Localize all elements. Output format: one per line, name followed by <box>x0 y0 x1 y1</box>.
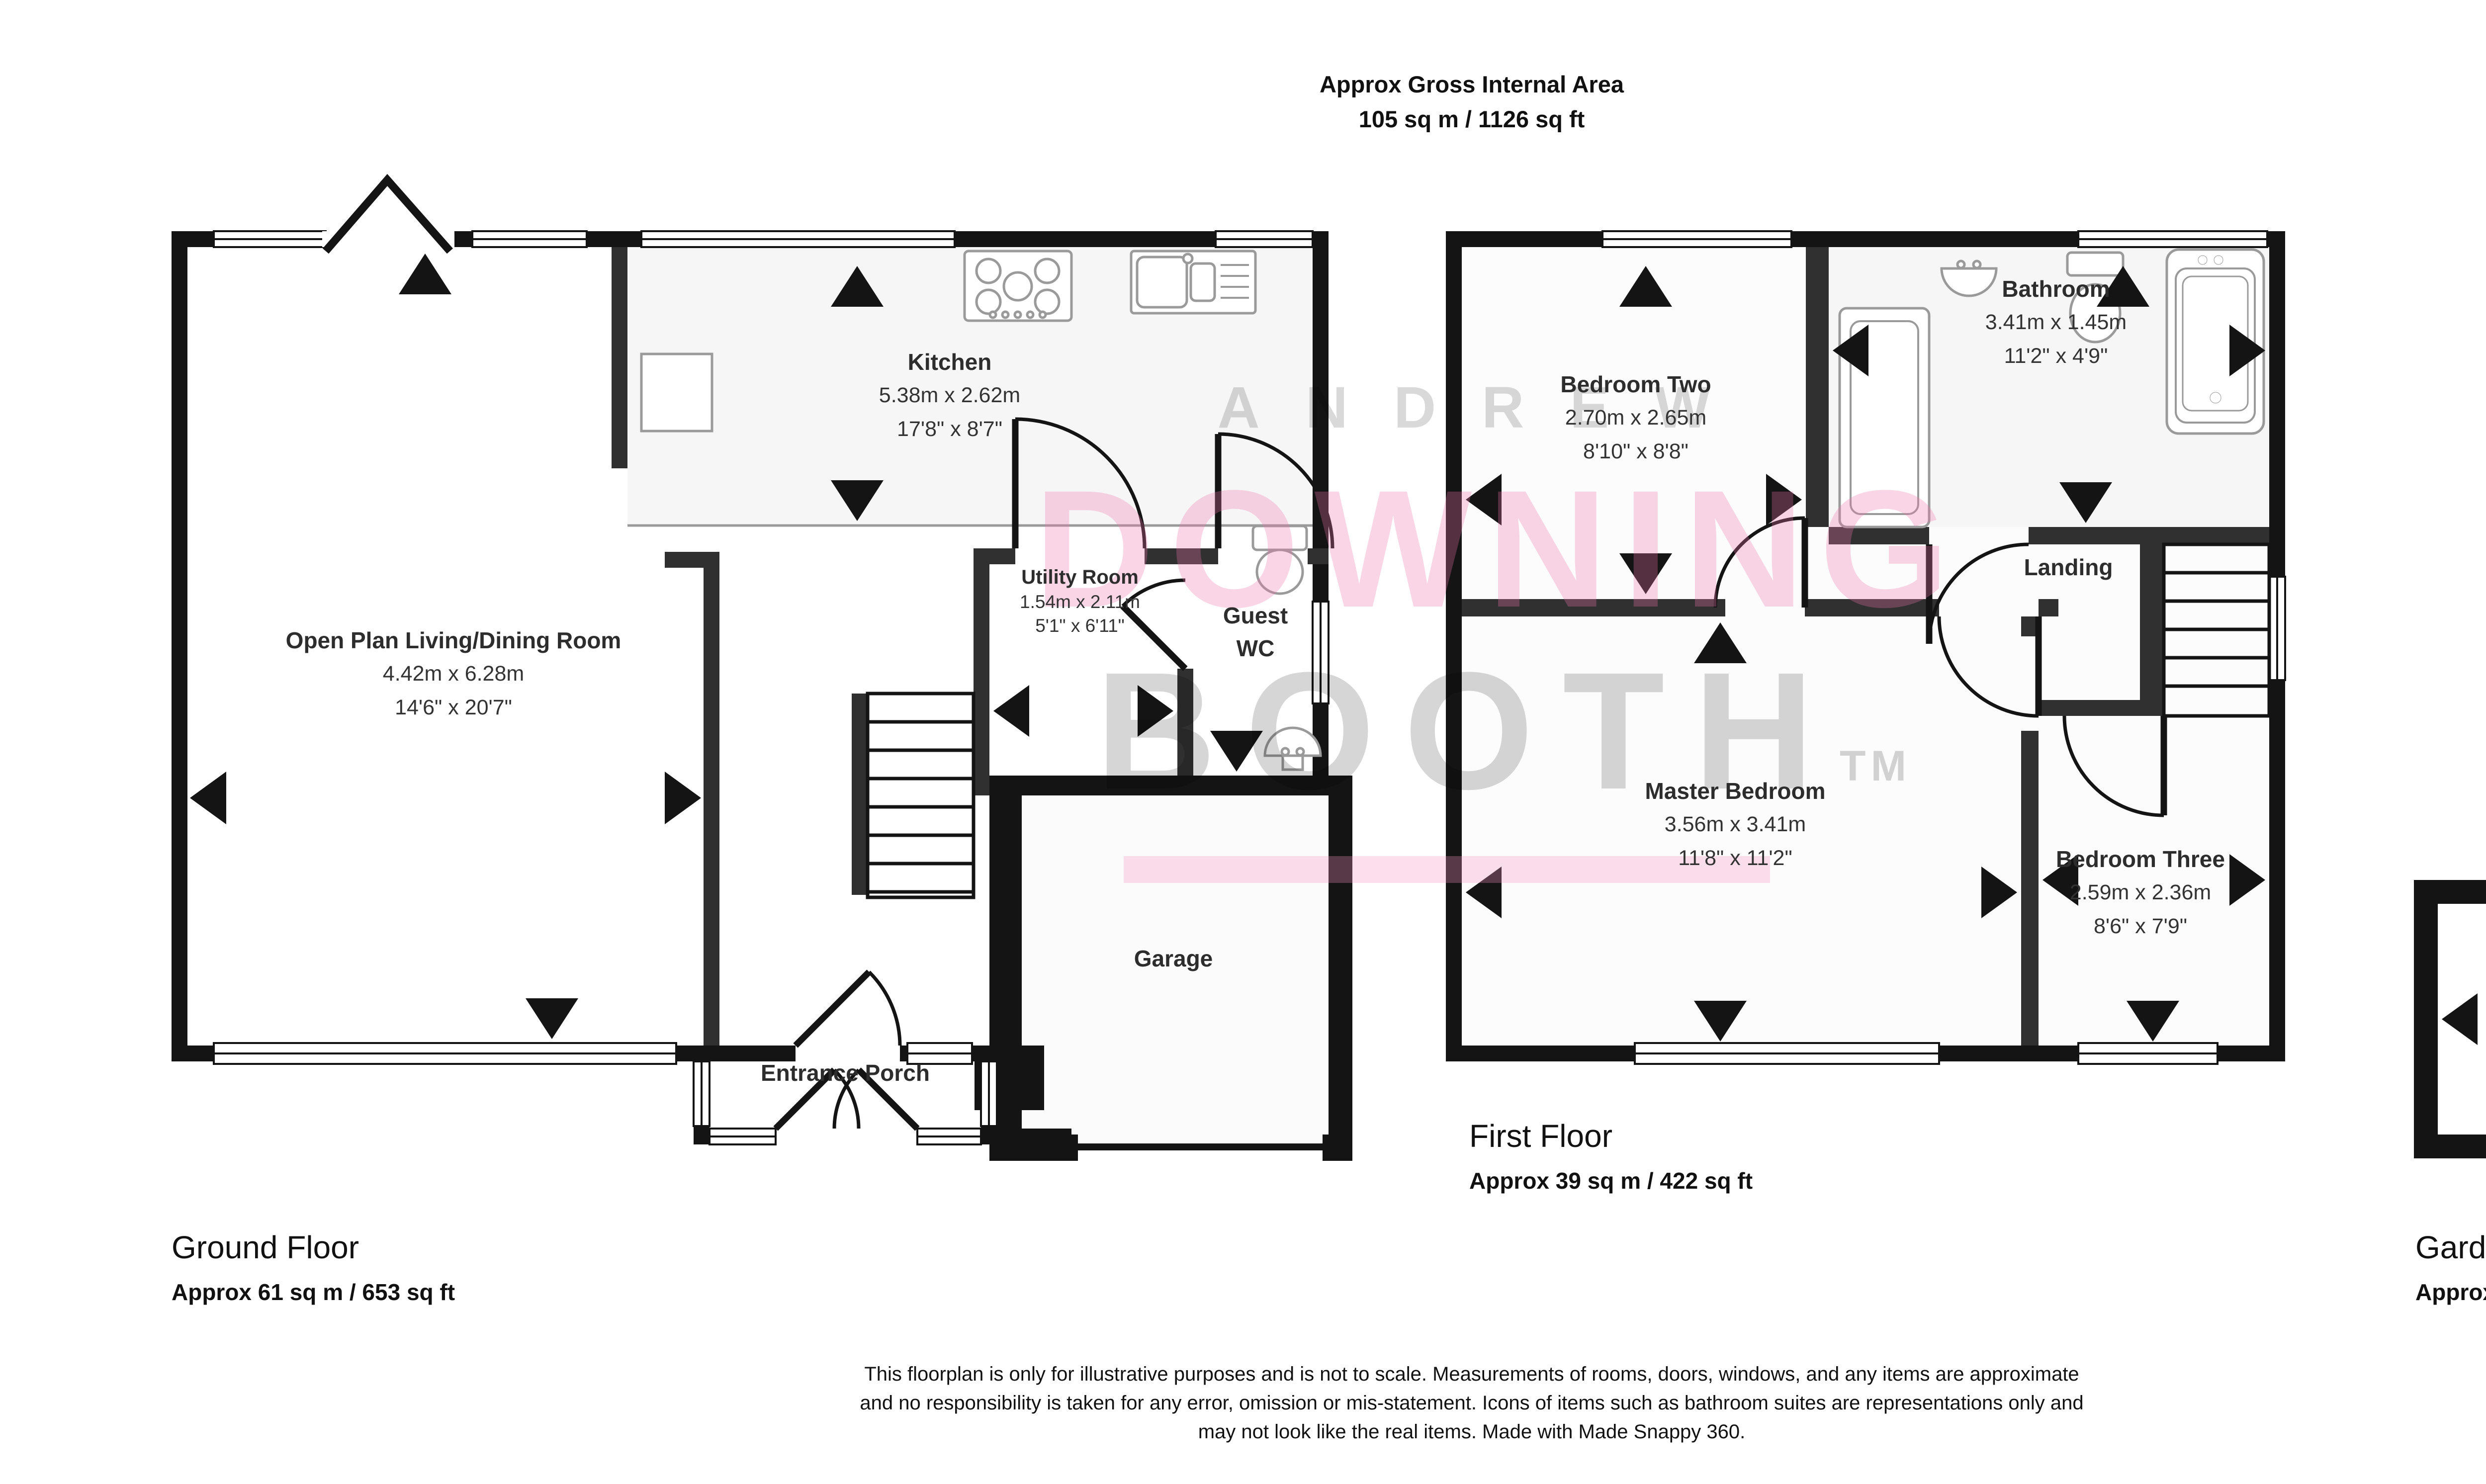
watermark-word-downing: DOWNING <box>1034 453 1964 645</box>
disclaimer-line-2: and no responsibility is taken for any e… <box>0 1392 2486 1414</box>
first-floor-title: First Floor <box>1469 1118 1612 1154</box>
watermark-tm: TM <box>1840 742 1911 791</box>
page-title: Approx Gross Internal Area <box>0 71 2486 98</box>
first-floor-area: Approx 39 sq m / 422 sq ft <box>1469 1167 1753 1194</box>
room-label-landing: Landing <box>2024 551 2113 584</box>
page-title-area: 105 sq m / 1126 sq ft <box>0 105 2486 133</box>
ground-floor-title: Ground Floor <box>172 1229 359 1266</box>
room-label-utility: Utility Room 1.54m x 2.11m 5'1" x 6'11" <box>1020 564 1140 638</box>
room-label-master: Master Bedroom 3.56m x 3.41m 11'8" x 11'… <box>1645 775 1826 875</box>
room-label-garage: Garage <box>1134 942 1213 975</box>
room-label-bedroom-three: Bedroom Three 2.59m x 2.36m 8'6" x 7'9" <box>2056 843 2225 943</box>
ground-floor-area: Approx 61 sq m / 653 sq ft <box>172 1279 455 1306</box>
garden-room-area: Approx 5 sq m / 51 sq ft <box>2415 1279 2486 1306</box>
room-label-guest-wc: Guest WC <box>1223 599 1288 665</box>
disclaimer-line-3: may not look like the real items. Made w… <box>0 1421 2486 1443</box>
garden-room-title: Garden Room <box>2415 1229 2486 1266</box>
disclaimer-line-1: This floorplan is only for illustrative … <box>0 1363 2486 1386</box>
floorplan-page: { "header": { "line1": "Approx Gross Int… <box>0 0 2486 1484</box>
room-label-bedroom-two: Bedroom Two 2.70m x 2.65m 8'10" x 8'8" <box>1560 368 1711 468</box>
room-label-kitchen: Kitchen 5.38m x 2.62m 17'8" x 8'7" <box>879 346 1020 446</box>
garden-arrows <box>2442 908 2486 1131</box>
room-label-porch: Entrance Porch <box>761 1056 930 1089</box>
room-label-bathroom: Bathroom 3.41m x 1.45m 11'2" x 4'9" <box>1985 272 2127 373</box>
garden-room-plan <box>2414 880 2486 1211</box>
ground-stairs <box>868 694 974 897</box>
chimney-breast <box>641 354 712 431</box>
room-label-living: Open Plan Living/Dining Room 4.42m x 6.2… <box>286 624 621 724</box>
bay-window <box>326 180 450 251</box>
hob-icon <box>965 251 1071 321</box>
kitchen-sink-icon <box>1131 251 1255 313</box>
